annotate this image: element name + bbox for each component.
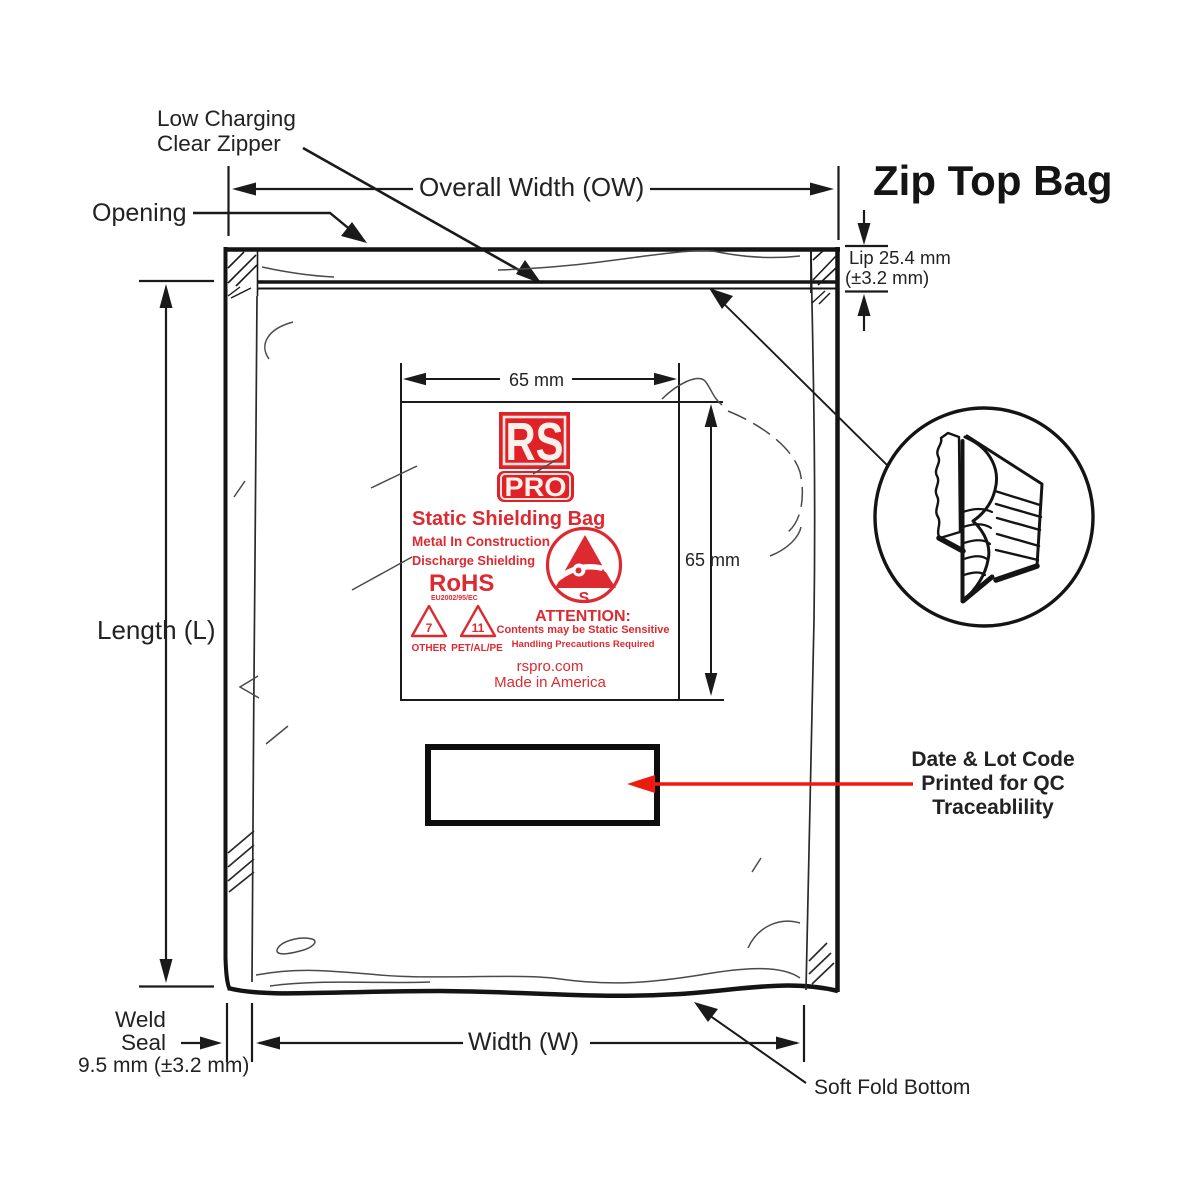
svg-text:65 mm: 65 mm	[509, 370, 564, 390]
svg-text:rspro.com: rspro.com	[517, 658, 584, 675]
svg-text:Clear Zipper: Clear Zipper	[157, 131, 281, 156]
svg-text:Handling Precautions Required: Handling Precautions Required	[512, 639, 655, 650]
svg-text:ATTENTION:: ATTENTION:	[535, 608, 631, 625]
svg-text:Weld: Weld	[115, 1007, 166, 1032]
svg-text:PRO: PRO	[505, 472, 567, 502]
svg-text:9.5 mm (±3.2 mm): 9.5 mm (±3.2 mm)	[78, 1054, 249, 1077]
svg-text:Length (L): Length (L)	[97, 615, 216, 645]
svg-text:RS: RS	[506, 412, 564, 472]
svg-text:Static Shielding Bag: Static Shielding Bag	[412, 508, 605, 530]
svg-text:11: 11	[472, 621, 485, 635]
svg-text:Metal In Construction: Metal In Construction	[412, 534, 550, 549]
svg-text:Printed for QC: Printed for QC	[921, 772, 1065, 795]
svg-text:7: 7	[426, 621, 433, 635]
svg-text:OTHER: OTHER	[412, 643, 448, 654]
svg-text:Discharge Shielding: Discharge Shielding	[412, 553, 535, 568]
svg-text:EU2002/95/EC: EU2002/95/EC	[431, 595, 478, 602]
svg-text:Date & Lot Code: Date & Lot Code	[911, 748, 1074, 771]
svg-text:Zip Top Bag: Zip Top Bag	[873, 157, 1113, 204]
svg-text:Width (W): Width (W)	[468, 1028, 579, 1056]
svg-text:Lip 25.4 mm: Lip 25.4 mm	[849, 247, 951, 268]
svg-text:(±3.2 mm): (±3.2 mm)	[845, 267, 929, 288]
svg-text:Seal: Seal	[121, 1030, 166, 1055]
svg-text:65 mm: 65 mm	[685, 550, 740, 570]
svg-text:Overall Width (OW): Overall Width (OW)	[419, 172, 644, 202]
svg-text:RoHS: RoHS	[429, 570, 494, 597]
svg-text:Low Charging: Low Charging	[157, 106, 296, 131]
svg-text:Traceablility: Traceablility	[932, 796, 1054, 819]
svg-text:Contents may be Static Sensiti: Contents may be Static Sensitive	[497, 624, 670, 636]
svg-text:Soft Fold Bottom: Soft Fold Bottom	[814, 1076, 970, 1099]
svg-text:Made in America: Made in America	[494, 674, 606, 691]
svg-text:Opening: Opening	[92, 199, 187, 227]
svg-text:S: S	[579, 590, 590, 607]
svg-text:PET/AL/PE: PET/AL/PE	[451, 643, 503, 654]
